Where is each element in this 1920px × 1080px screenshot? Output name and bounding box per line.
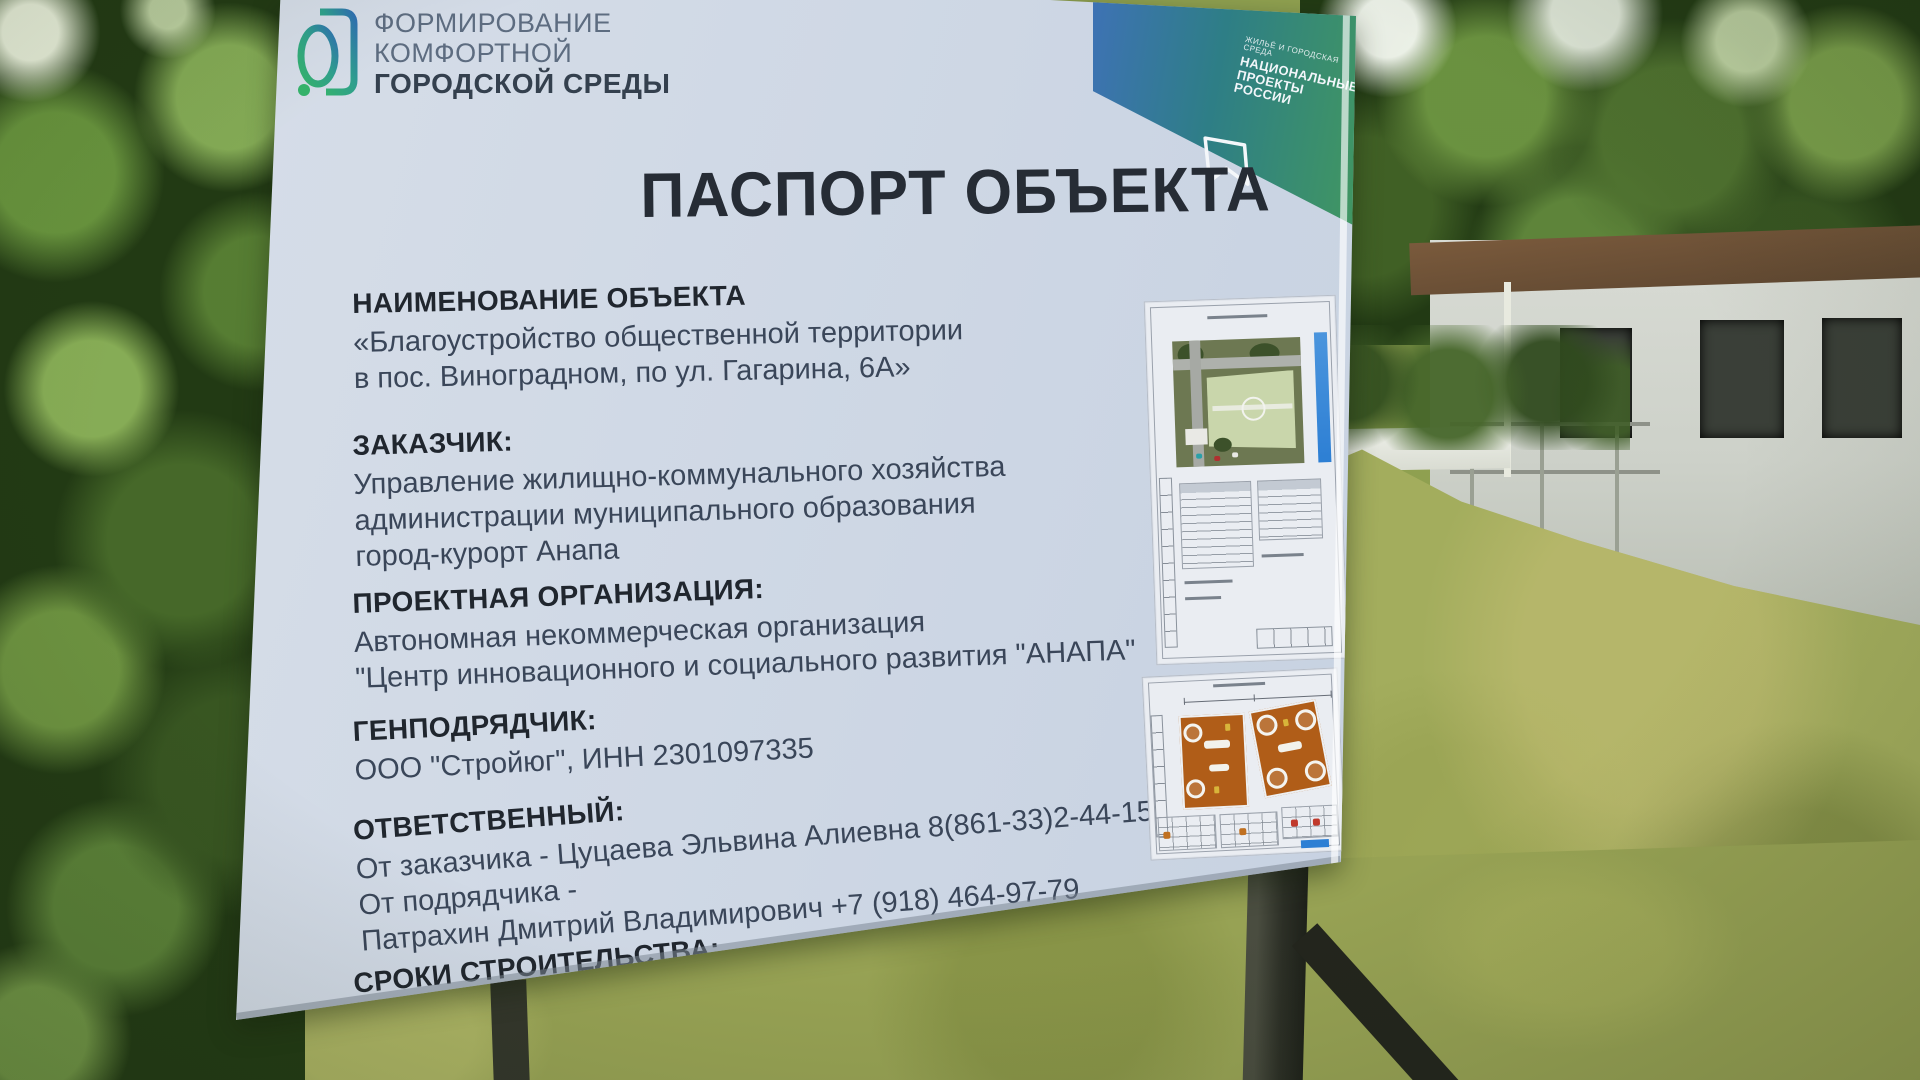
equipment-circle	[1183, 723, 1203, 743]
equipment-circle	[1293, 708, 1318, 733]
equipment-item	[1209, 764, 1229, 772]
plan-blue-chip	[1301, 839, 1329, 848]
playground-plan-sheet	[1142, 667, 1347, 860]
drawing-title-block	[1256, 626, 1333, 649]
legend-table	[1179, 481, 1254, 569]
legend-table	[1257, 478, 1323, 540]
fkgs-logo-text: ФОРМИРОВАНИЕ КОМФОРТНОЙ ГОРОДСКОЙ СРЕДЫ	[374, 4, 670, 104]
fkgs-line-2: КОМФОРТНОЙ	[374, 38, 670, 68]
table-glyph	[1291, 819, 1298, 826]
photo-of-project-passport-board: ЖИЛЬЁ И ГОРОДСКАЯ СРЕДА НАЦИОНАЛЬНЫЕ ПРО…	[0, 0, 1920, 1080]
equipment-circle	[1186, 779, 1206, 799]
fkgs-logo-icon	[284, 4, 360, 104]
equipment-item	[1277, 741, 1302, 753]
table-glyph	[1163, 832, 1170, 839]
equipment-circle	[1265, 766, 1290, 791]
equipment-table	[1157, 814, 1217, 851]
map-trees	[1214, 438, 1232, 453]
table-glyph	[1239, 828, 1246, 835]
information-board: ЖИЛЬЁ И ГОРОДСКАЯ СРЕДА НАЦИОНАЛЬНЫЕ ПРО…	[0, 0, 1920, 1080]
equipment-item	[1283, 719, 1289, 727]
fkgs-line-3: ГОРОДСКОЙ СРЕДЫ	[374, 68, 670, 99]
section-object-name: НАИМЕНОВАНИЕ ОБЪЕКТА «Благоустройство об…	[352, 275, 964, 398]
section-general-contractor: ГЕНПОДРЯДЧИК: ООО "Стройюг", ИНН 2301097…	[352, 694, 815, 790]
section-customer: ЗАКАЗЧИК: Управление жилищно-коммунально…	[352, 412, 1008, 576]
map-building	[1185, 429, 1208, 446]
equipment-item	[1204, 740, 1230, 749]
map-circular-plaza	[1241, 396, 1266, 421]
equipment-circle	[1255, 713, 1280, 738]
aerial-site-plan	[1172, 337, 1304, 467]
equipment-item	[1214, 786, 1219, 793]
table-glyph	[1313, 818, 1320, 825]
fkgs-line-1: ФОРМИРОВАНИЕ	[374, 8, 670, 38]
playground-plan-left	[1179, 713, 1250, 810]
site-plan-sheet	[1144, 295, 1349, 665]
section-heading: НАИМЕНОВАНИЕ ОБЪЕКТА	[352, 275, 963, 320]
equipment-circle	[1303, 759, 1328, 784]
fkgs-logo: ФОРМИРОВАНИЕ КОМФОРТНОЙ ГОРОДСКОЙ СРЕДЫ	[284, 4, 670, 104]
map-car	[1215, 456, 1221, 461]
page-title: ПАСПОРТ ОБЪЕКТА	[640, 154, 1223, 232]
equipment-item	[1225, 724, 1230, 731]
equipment-table	[1281, 805, 1338, 840]
section-design-organization: ПРОЕКТНАЯ ОРГАНИЗАЦИЯ: Автономная некомм…	[352, 559, 1136, 697]
equipment-table	[1219, 811, 1279, 848]
map-car	[1232, 453, 1238, 458]
section-line: Окончание строительства - ноябрь 2023 г.	[359, 986, 928, 1077]
board-shadow: ЖИЛЬЁ И ГОРОДСКАЯ СРЕДА НАЦИОНАЛЬНЫЕ ПРО…	[0, 0, 1920, 1080]
